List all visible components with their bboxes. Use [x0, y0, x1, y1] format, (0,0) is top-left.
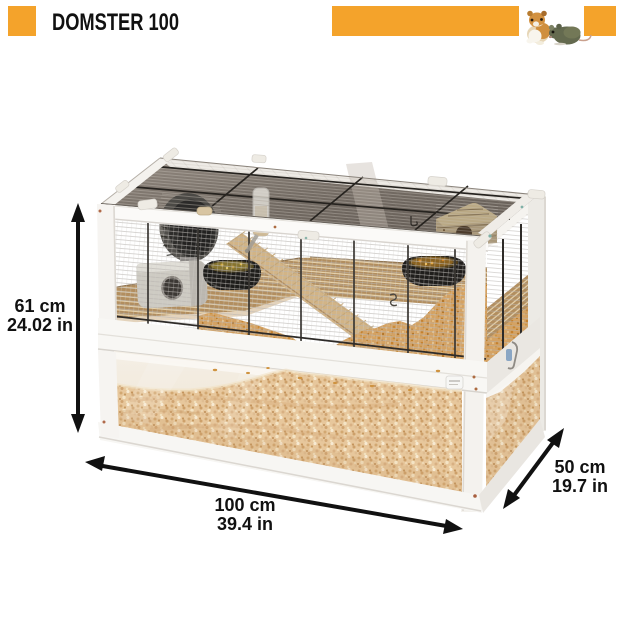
svg-text:DOMSTER 100: DOMSTER 100 — [52, 9, 179, 36]
svg-text:50 cm: 50 cm — [554, 457, 605, 477]
svg-text:39.4 in: 39.4 in — [217, 514, 273, 534]
svg-text:100 cm: 100 cm — [214, 495, 275, 515]
svg-text:19.7 in: 19.7 in — [552, 476, 608, 496]
svg-text:61 cm: 61 cm — [14, 296, 65, 316]
svg-text:24.02 in: 24.02 in — [7, 315, 73, 335]
